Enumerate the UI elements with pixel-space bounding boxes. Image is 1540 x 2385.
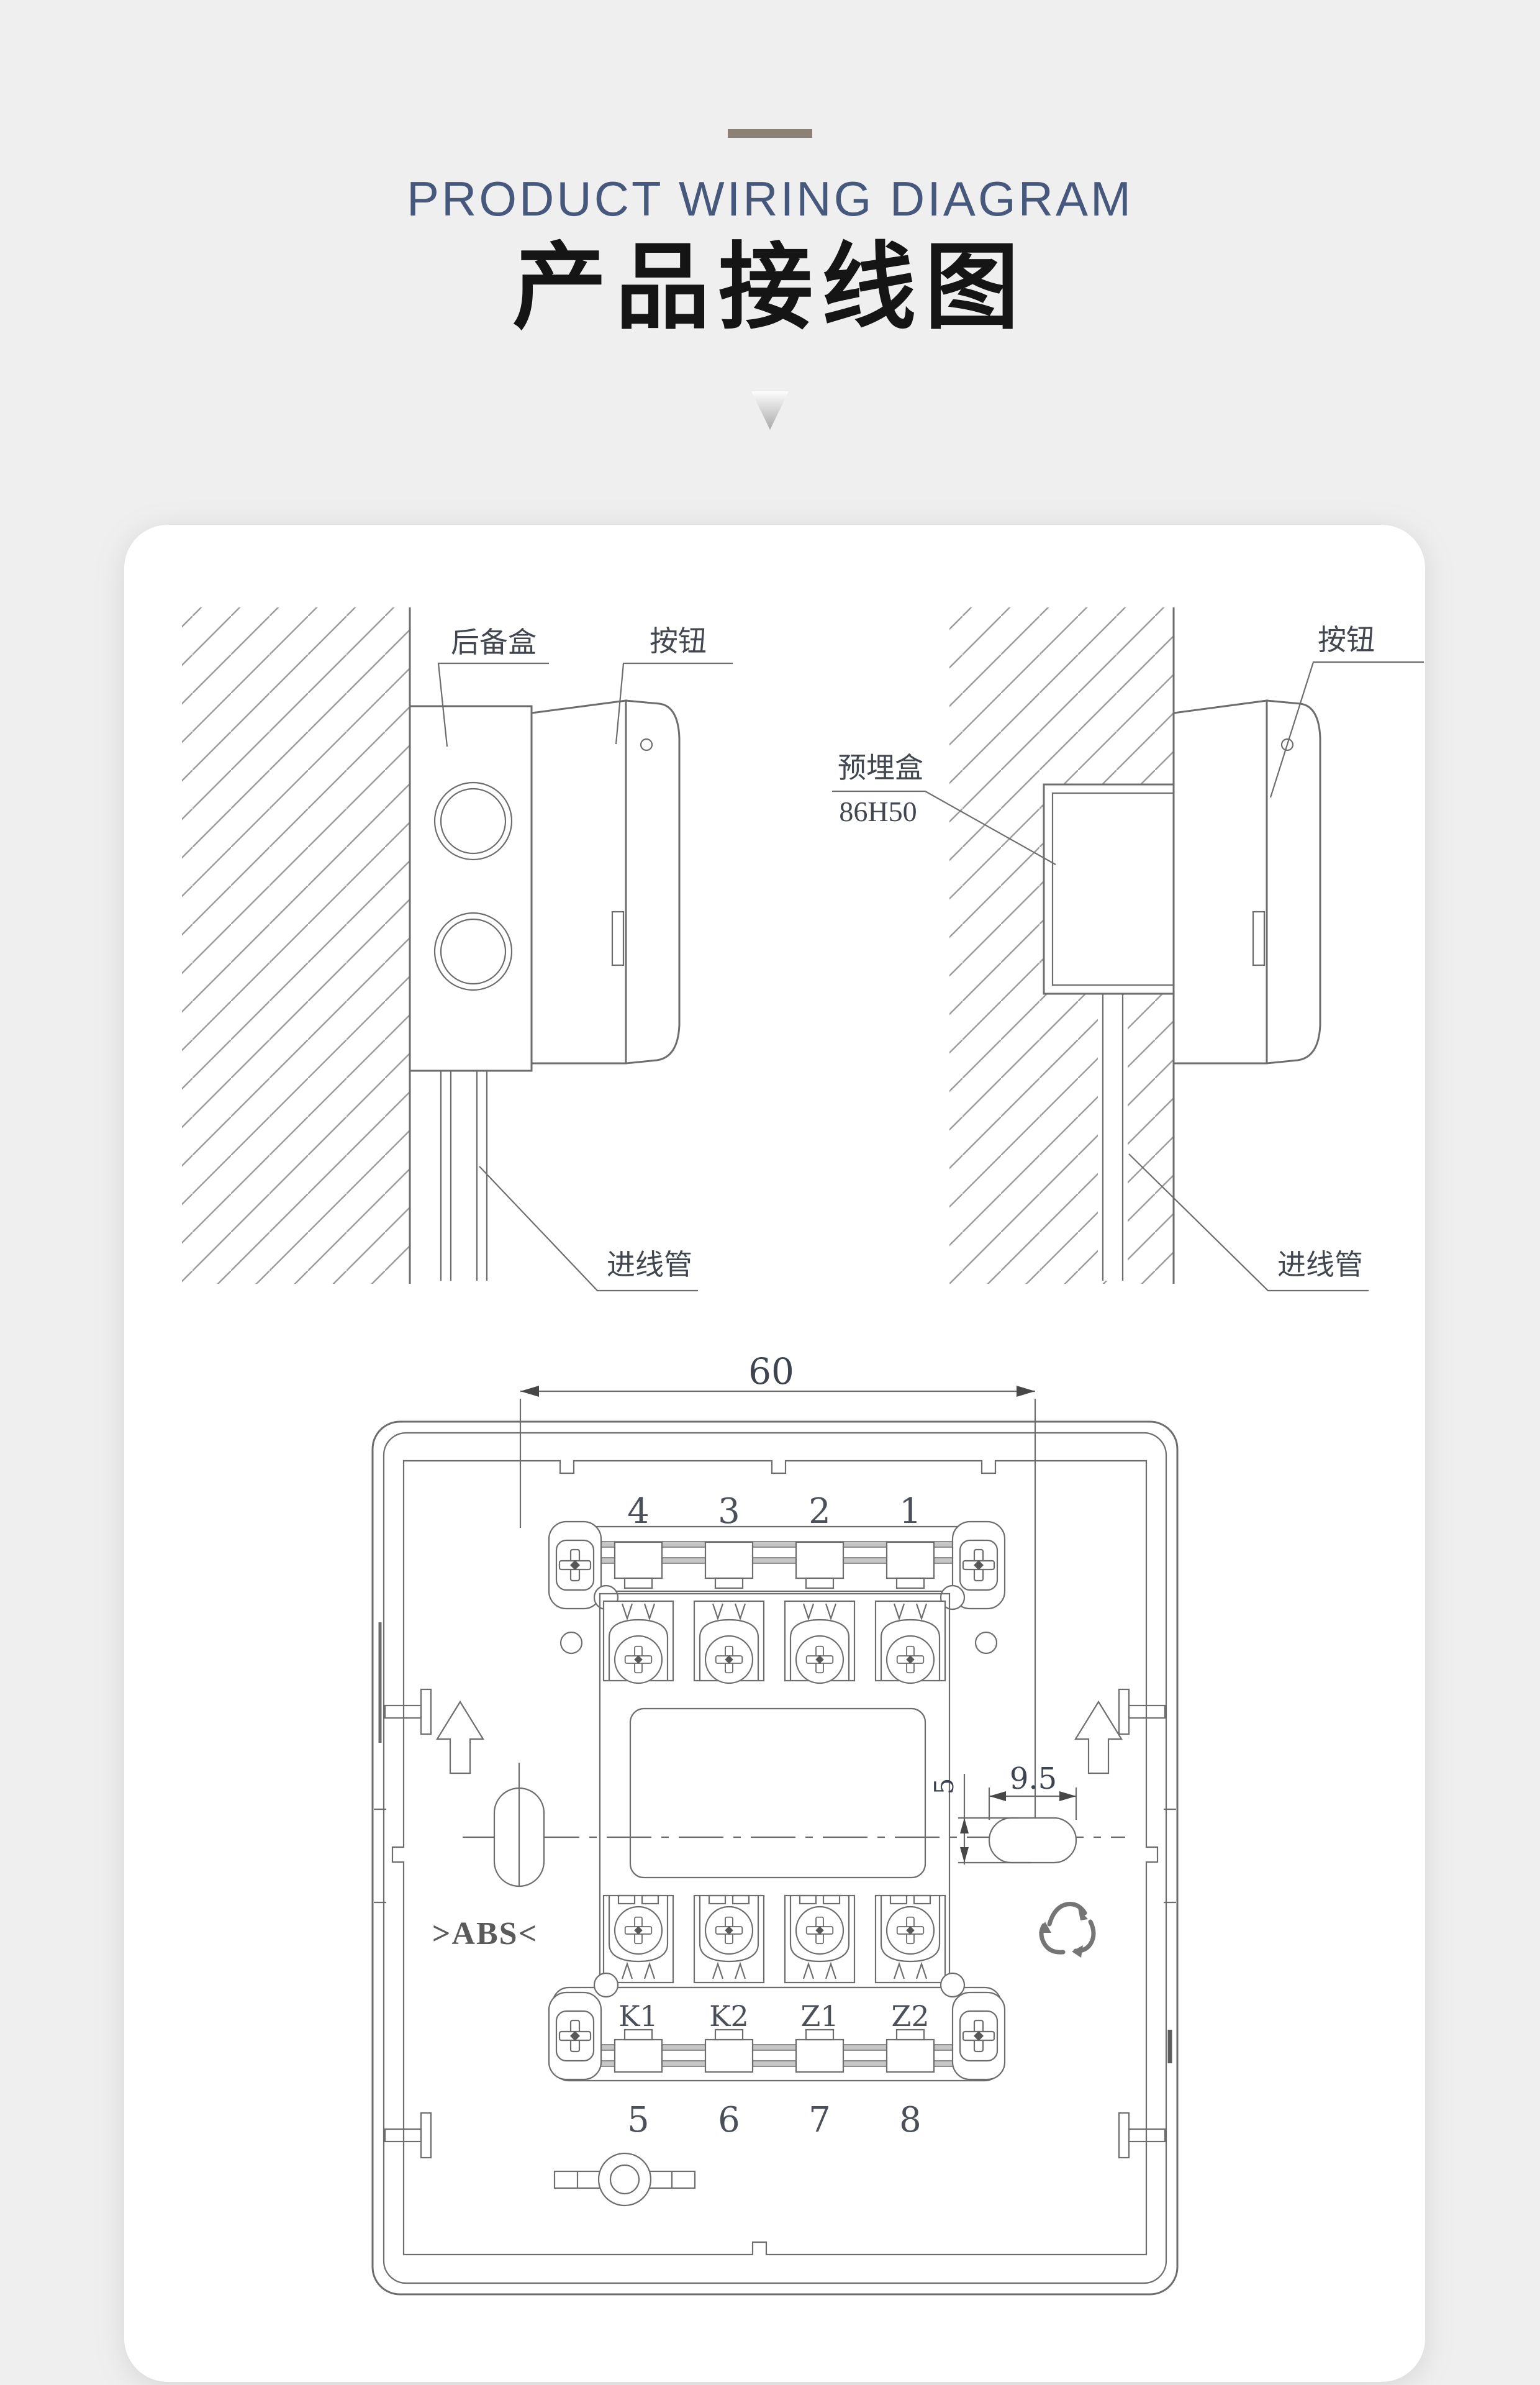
- header: PRODUCT WIRING DIAGRAM 产品接线图: [407, 129, 1133, 430]
- svg-text:K2: K2: [709, 1999, 749, 2033]
- header-dash: [728, 129, 812, 138]
- dim-hole-height-value: 5: [929, 1778, 959, 1795]
- button-front-face: [626, 701, 679, 1063]
- svg-text:5: 5: [627, 2100, 650, 2140]
- label-backup-box: 后备盒: [451, 627, 537, 658]
- svg-text:7: 7: [808, 2100, 831, 2140]
- button-back-plate: [532, 701, 626, 1063]
- mount-screw-bottom-right: [953, 1992, 1005, 2079]
- dim-60-value: 60: [748, 1350, 794, 1392]
- button-front-face-right: [1267, 701, 1320, 1063]
- dim-hole-width-value: 9.5: [1010, 1761, 1057, 1796]
- material-mark-abs: >ABS<: [432, 1916, 538, 1951]
- scroll-down-triangle-icon: [751, 391, 789, 430]
- backup-box: [410, 706, 532, 1071]
- label-inlet-pipe-right: 进线管: [1277, 1249, 1363, 1281]
- svg-text:Z2: Z2: [891, 1999, 929, 2033]
- svg-text:4: 4: [627, 1491, 650, 1532]
- cable-hole-right: [989, 1818, 1076, 1863]
- svg-text:1: 1: [899, 1491, 922, 1532]
- label-embedded-box-model: 86H50: [839, 796, 917, 827]
- bottom-terminal-strip: K1 K2 Z1 Z2: [549, 1973, 1005, 2081]
- product-wiring-diagram-page: PRODUCT WIRING DIAGRAM 产品接线图 后备盒 按钮 进线管: [0, 0, 1540, 2385]
- svg-text:K1: K1: [618, 1999, 658, 2033]
- embedded-box: [1044, 784, 1174, 994]
- mount-screw-top-left: [549, 1522, 601, 1609]
- svg-text:3: 3: [718, 1491, 740, 1532]
- wall-hatch: [182, 607, 410, 1284]
- label-inlet-pipe-left: 进线管: [607, 1249, 692, 1281]
- svg-text:8: 8: [899, 2100, 922, 2140]
- page-title-en: PRODUCT WIRING DIAGRAM: [407, 171, 1133, 226]
- svg-text:2: 2: [808, 1491, 831, 1532]
- svg-text:6: 6: [718, 2100, 740, 2140]
- label-embedded-box: 预埋盒: [838, 752, 923, 784]
- diagram-canvas: PRODUCT WIRING DIAGRAM 产品接线图 后备盒 按钮 进线管: [0, 0, 1540, 2385]
- svg-text:Z1: Z1: [800, 1999, 838, 2033]
- label-button-left: 按钮: [650, 625, 707, 657]
- page-title-cn: 产品接线图: [512, 235, 1028, 340]
- button-back-plate-right: [1174, 701, 1267, 1063]
- label-button-right: 按钮: [1318, 624, 1375, 656]
- mount-screw-bottom-left: [549, 1992, 601, 2079]
